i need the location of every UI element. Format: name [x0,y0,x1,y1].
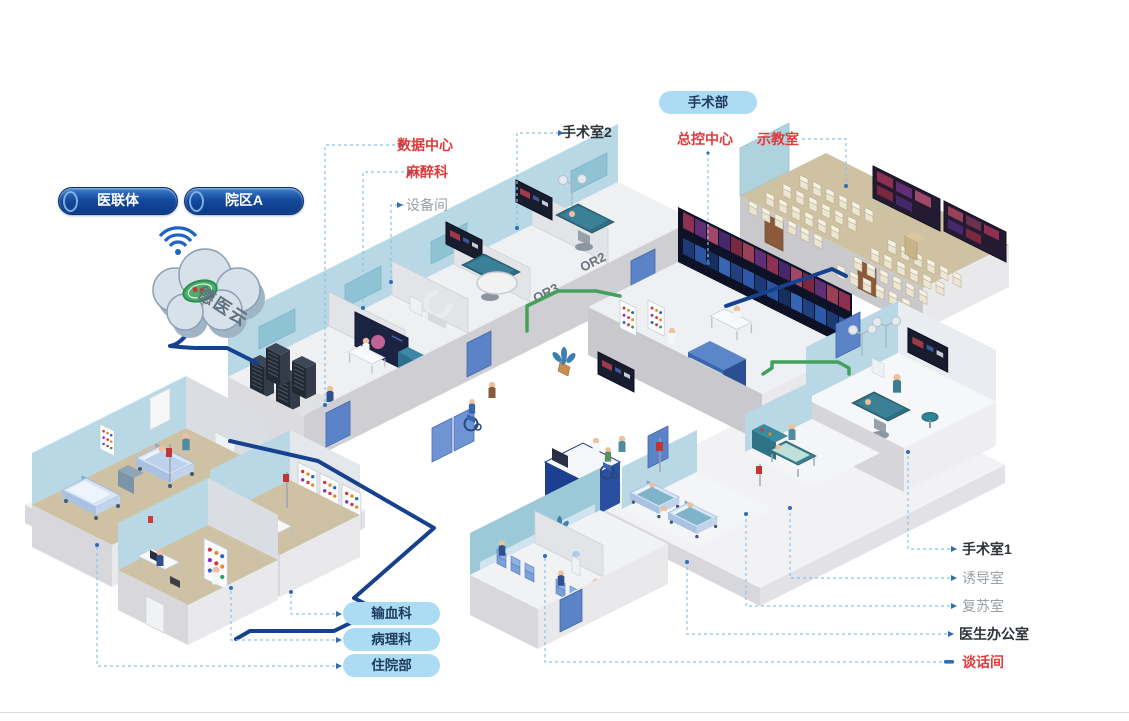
hospital-diagram: OR2 OR3 [0,0,1129,721]
water-cooler [572,551,580,576]
wifi-icon [160,228,196,255]
pill-surgery-department: 手术部 [659,91,757,114]
receptionist [593,438,600,454]
server-rack [266,343,290,386]
standing-technician [212,567,220,585]
label-operating-room-2: 手术室2 [562,124,612,140]
plant [551,347,577,376]
iv-bag [166,448,172,457]
iv-bag [656,442,663,451]
label-induction-room: 诱导室 [962,570,1004,586]
waiting-patient [558,570,565,585]
server-rack [292,356,316,399]
pill-blood-transfusion: 输血科 [343,602,440,625]
label-master-control: 总控中心 [677,131,733,147]
pill-inpatient-department: 住院部 [343,654,440,677]
pill-pathology: 病理科 [343,628,440,651]
label-demo-classroom: 示教室 [757,131,799,147]
iv-bag [283,474,289,482]
label-data-center: 数据中心 [397,137,453,153]
pill-campus-a[interactable]: 院区A [184,187,304,215]
isometric-scene: OR2 OR3 [0,0,1129,721]
waiting-patient [499,540,506,555]
control-operator [734,306,741,322]
bottom-divider [0,712,1129,713]
standing-man [489,382,496,398]
label-equipment-room: 设备间 [406,197,448,213]
technician [327,386,334,402]
label-talk-room: 谈话间 [962,654,1004,670]
label-doctor-office: 医生办公室 [959,626,1029,642]
surgeon [893,374,901,393]
or3-disc-device [477,272,517,294]
ward-nurse [182,433,189,450]
pathologist [157,550,164,566]
anesthesiologist [363,338,370,354]
pill-medical-alliance[interactable]: 医联体 [58,187,178,215]
recovery-doctor [661,506,668,522]
iv-bag [756,466,762,474]
nurse [619,436,626,452]
label-anesthesiology: 麻醉科 [406,164,448,180]
label-operating-room-1: 手术室1 [962,541,1012,557]
induction-nurse [789,424,796,440]
label-recovery-room: 复苏室 [962,598,1004,614]
control-staff [669,328,676,344]
